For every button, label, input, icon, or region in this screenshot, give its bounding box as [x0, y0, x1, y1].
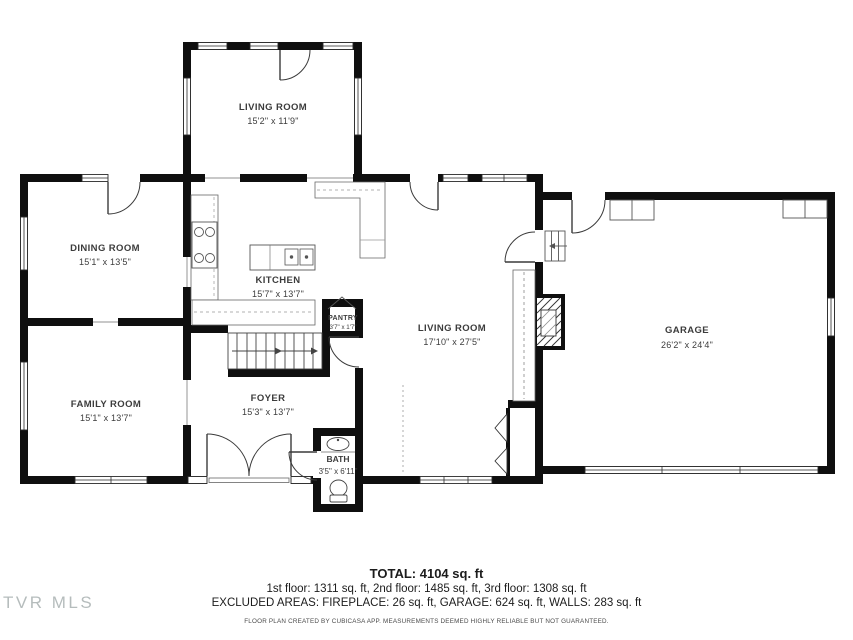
- stove: [192, 222, 217, 268]
- door-garage-to-house: [505, 232, 535, 262]
- dims-kitchen: 15'7" x 13'7": [252, 289, 304, 299]
- excluded-areas: EXCLUDED AREAS: FIREPLACE: 26 sq. ft, GA…: [0, 597, 853, 609]
- bath-sink: [327, 438, 349, 451]
- dims-pantry: 3'7" x 1'7": [329, 324, 356, 331]
- label-pantry: PANTRY: [328, 315, 358, 322]
- walls: [20, 42, 835, 512]
- door-annex: [280, 50, 310, 80]
- area-summary: TOTAL: 4104 sq. ft 1st floor: 1311 sq. f…: [0, 566, 853, 611]
- dims-dining: 15'1" x 13'5": [79, 257, 131, 267]
- living-counter-L: [315, 182, 385, 258]
- kitchen-island: [250, 245, 315, 270]
- dims-foyer: 15'3" x 13'7": [242, 407, 294, 417]
- fireplace-builtin: [513, 270, 535, 401]
- entry-threshold: [209, 478, 289, 483]
- label-living-main: LIVING ROOM: [418, 323, 486, 334]
- floor-plan-page: LIVING ROOM 15'2" x 11'9" DINING ROOM 15…: [0, 0, 853, 640]
- dims-garage: 26'2" x 24'4": [661, 340, 713, 350]
- windows: [21, 43, 835, 484]
- nook-bifold-doors: [495, 414, 507, 474]
- dims-family: 15'1" x 13'7": [80, 413, 132, 423]
- room-labels: LIVING ROOM 15'2" x 11'9" DINING ROOM 15…: [70, 102, 713, 476]
- label-garage: GARAGE: [665, 325, 709, 336]
- total-area: TOTAL: 4104 sq. ft: [0, 566, 853, 581]
- label-dining: DINING ROOM: [70, 243, 140, 254]
- label-family: FAMILY ROOM: [71, 399, 141, 410]
- floor-areas: 1st floor: 1311 sq. ft, 2nd floor: 1485 …: [0, 583, 853, 595]
- disclaimer: FLOOR PLAN CREATED BY CUBICASA APP. MEAS…: [0, 618, 853, 625]
- staircase: [228, 333, 322, 369]
- toilet: [330, 480, 347, 502]
- label-bath: BATH: [327, 454, 350, 464]
- door-living-top: [410, 182, 438, 210]
- mls-watermark: TVR MLS: [3, 593, 94, 613]
- fireplace: [533, 294, 565, 350]
- label-kitchen: KITCHEN: [255, 275, 300, 286]
- door-foyer-living: [329, 337, 359, 367]
- dims-living-top: 15'2" x 11'9": [247, 116, 298, 126]
- door-dining-exterior: [108, 182, 140, 214]
- entry-double-doors: [207, 434, 291, 476]
- window-mullions: [24, 46, 831, 484]
- kitchen-counter-bottom: [192, 300, 315, 325]
- door-bath: [289, 452, 317, 480]
- label-foyer: FOYER: [251, 393, 286, 404]
- label-living-top: LIVING ROOM: [239, 102, 307, 113]
- dims-living-main: 17'10" x 27'5": [423, 337, 480, 347]
- garage-cabinets: [610, 200, 827, 220]
- floor-plan-canvas: LIVING ROOM 15'2" x 11'9" DINING ROOM 15…: [0, 0, 853, 640]
- garage-steps: [545, 231, 567, 261]
- door-garage-exterior: [572, 200, 605, 233]
- dims-bath: 3'5" x 6'11": [319, 467, 358, 476]
